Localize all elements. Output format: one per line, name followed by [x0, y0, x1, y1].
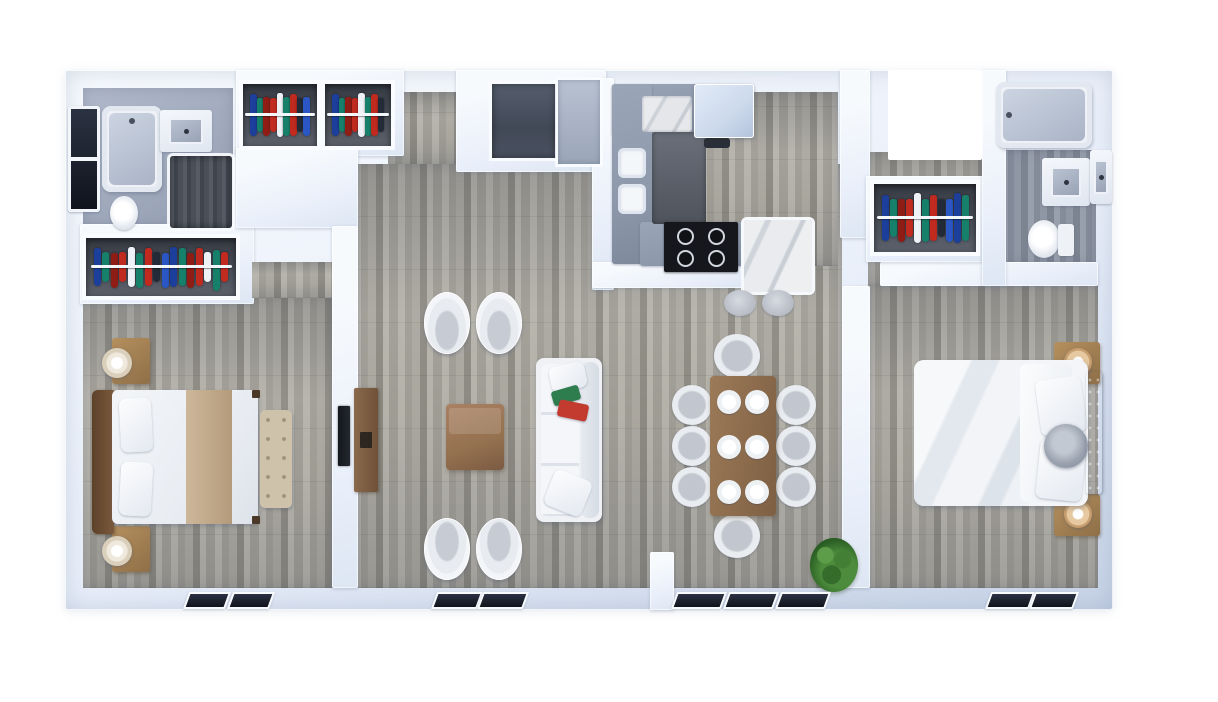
table-lamp: [102, 536, 132, 566]
dinner-plate: [717, 390, 741, 414]
garment: [898, 199, 905, 242]
dinner-plate: [745, 435, 769, 459]
refrigerator: [694, 84, 754, 138]
garment: [283, 97, 290, 135]
window-pane: [671, 592, 727, 609]
tv-console: [354, 388, 378, 492]
burner: [677, 250, 694, 267]
dining-chair: [672, 385, 712, 425]
dining-chair: [714, 334, 760, 378]
garment: [345, 97, 352, 135]
cooktop: [664, 222, 738, 272]
dark-counter: [652, 132, 706, 224]
round-cushion: [1044, 424, 1088, 468]
bedroom-left-doorway-floor: [252, 262, 332, 298]
garment: [111, 253, 118, 289]
window-pane: [985, 592, 1035, 609]
foot-bench: [260, 410, 292, 508]
window-pane: [775, 592, 831, 609]
window-pane: [183, 592, 231, 609]
garment: [136, 253, 143, 289]
window-pane: [431, 592, 483, 609]
dining-chair: [776, 467, 816, 507]
bar-stool: [762, 290, 794, 316]
utility-nook: [558, 80, 600, 164]
sofa: [536, 358, 602, 522]
vanity-sink: [160, 110, 212, 152]
bed-post: [252, 390, 260, 398]
shower-area: [170, 156, 232, 228]
garment: [922, 199, 929, 242]
bed-post: [252, 516, 260, 524]
window-pane: [1029, 592, 1079, 609]
closet-rod: [91, 265, 232, 268]
window-pane: [477, 592, 529, 609]
burner: [708, 228, 725, 245]
table-lamp: [102, 348, 132, 378]
garment: [162, 253, 169, 289]
armchair: [424, 518, 470, 580]
garment: [303, 97, 310, 135]
mirror-cabinet: [1090, 150, 1112, 204]
garment: [213, 250, 220, 291]
closet-bedroom-left: [86, 238, 236, 296]
dinner-plate: [745, 480, 769, 504]
marble-counter: [642, 96, 692, 132]
dinner-plate: [717, 435, 741, 459]
dinner-plate: [717, 480, 741, 504]
bathtub: [996, 82, 1092, 148]
pillow: [119, 461, 154, 517]
bed-headboard: [1086, 372, 1102, 494]
dining-chair: [714, 514, 760, 558]
entry-alcove: [492, 84, 556, 158]
toilet: [1028, 220, 1060, 258]
bar-stool: [724, 290, 756, 316]
vanity-sink: [1042, 158, 1090, 206]
apartment-floor-plan: [65, 70, 1113, 610]
potted-plant: [810, 538, 858, 592]
refrigerator-vent: [704, 138, 730, 148]
armchair: [476, 518, 522, 580]
bathtub: [102, 106, 162, 192]
kitchen-island: [744, 220, 812, 292]
window-pane: [227, 592, 275, 609]
closet-a: [243, 84, 317, 146]
dining-chair: [672, 426, 712, 466]
armchair: [476, 292, 522, 354]
coffee-table: [446, 404, 504, 470]
dining-chair: [672, 467, 712, 507]
wall-segment: [236, 148, 358, 228]
armchair: [424, 292, 470, 354]
wall-pillar-bottom: [650, 552, 674, 610]
dinner-plate: [745, 390, 769, 414]
closet-rod: [245, 113, 315, 116]
garment: [187, 253, 194, 289]
closet-rod: [327, 113, 389, 116]
kitchen-sink-basin: [618, 148, 646, 178]
burner: [677, 228, 694, 245]
closet-b: [325, 84, 391, 146]
toilet: [110, 196, 138, 230]
toilet-tank: [1058, 224, 1074, 256]
kitchen-sink-basin: [618, 184, 646, 214]
bed-headboard: [92, 390, 114, 534]
duvet: [914, 360, 1032, 506]
pillow: [119, 397, 154, 453]
garment: [263, 97, 270, 135]
exterior-gap: [888, 70, 982, 160]
bed-runner: [186, 390, 232, 524]
dining-chair: [776, 385, 816, 425]
garment: [946, 199, 953, 242]
bathroom-window: [68, 106, 100, 212]
closet-hall-right: [874, 184, 976, 252]
dining-chair: [776, 426, 816, 466]
render-canvas: [0, 0, 1218, 702]
closet-rod: [877, 216, 973, 219]
burner: [708, 250, 725, 267]
window-pane: [723, 592, 779, 609]
tv: [338, 406, 350, 466]
